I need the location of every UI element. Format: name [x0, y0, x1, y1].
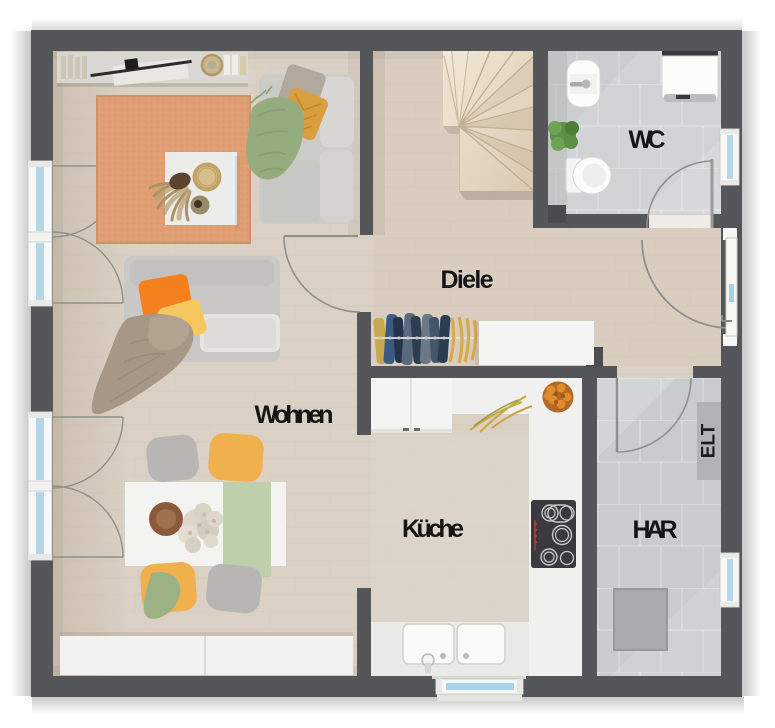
svg-text:WC: WC [629, 126, 666, 154]
svg-text:Diele: Diele [441, 266, 494, 294]
svg-text:Wohnen: Wohnen [255, 401, 334, 429]
svg-text:HAR: HAR [633, 516, 678, 544]
svg-text:Küche: Küche [402, 515, 464, 543]
svg-text:ELT: ELT [699, 423, 720, 458]
